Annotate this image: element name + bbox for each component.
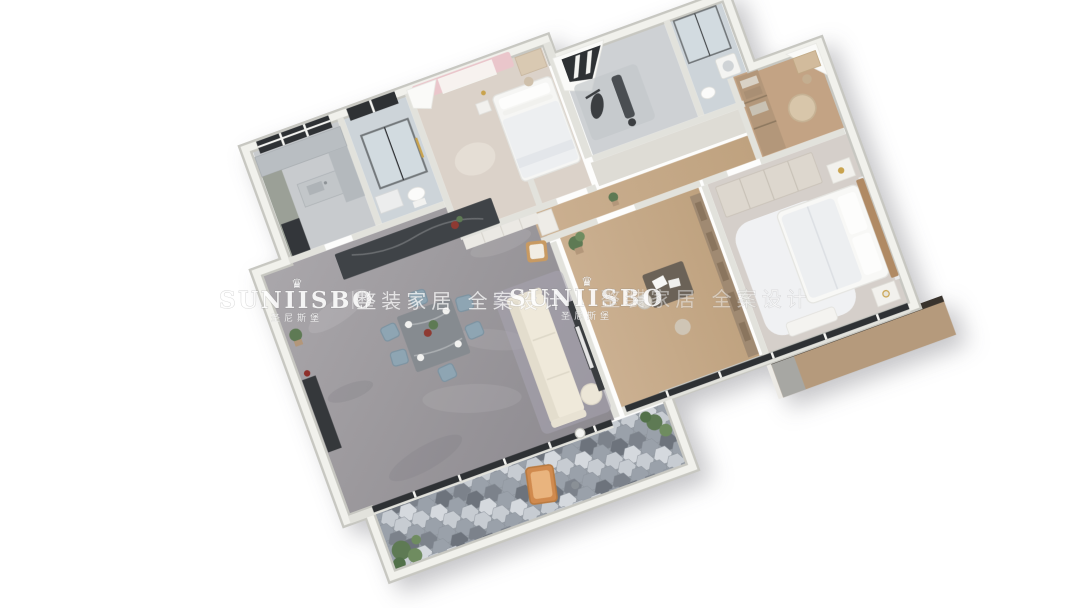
watermark-brand: SUNIISBO <box>219 287 375 314</box>
lounge-chair <box>526 464 558 504</box>
watermark-brand-cn: 圣尼斯堡 <box>561 310 613 322</box>
floor-plan-canvas: ♛ SUNIISBO 圣尼斯堡 整装家居 全案设计 ♛ SUNIISBO 圣尼斯… <box>0 0 1080 608</box>
watermark-brand-cn: 圣尼斯堡 <box>271 312 323 324</box>
watermark-divider <box>352 291 354 309</box>
wood-armchair <box>525 240 548 263</box>
watermark-tagline: 整装家居 全案设计 <box>600 287 811 311</box>
floor-plan-render: ♛ SUNIISBO 圣尼斯堡 整装家居 全案设计 ♛ SUNIISBO 圣尼斯… <box>0 0 1080 608</box>
